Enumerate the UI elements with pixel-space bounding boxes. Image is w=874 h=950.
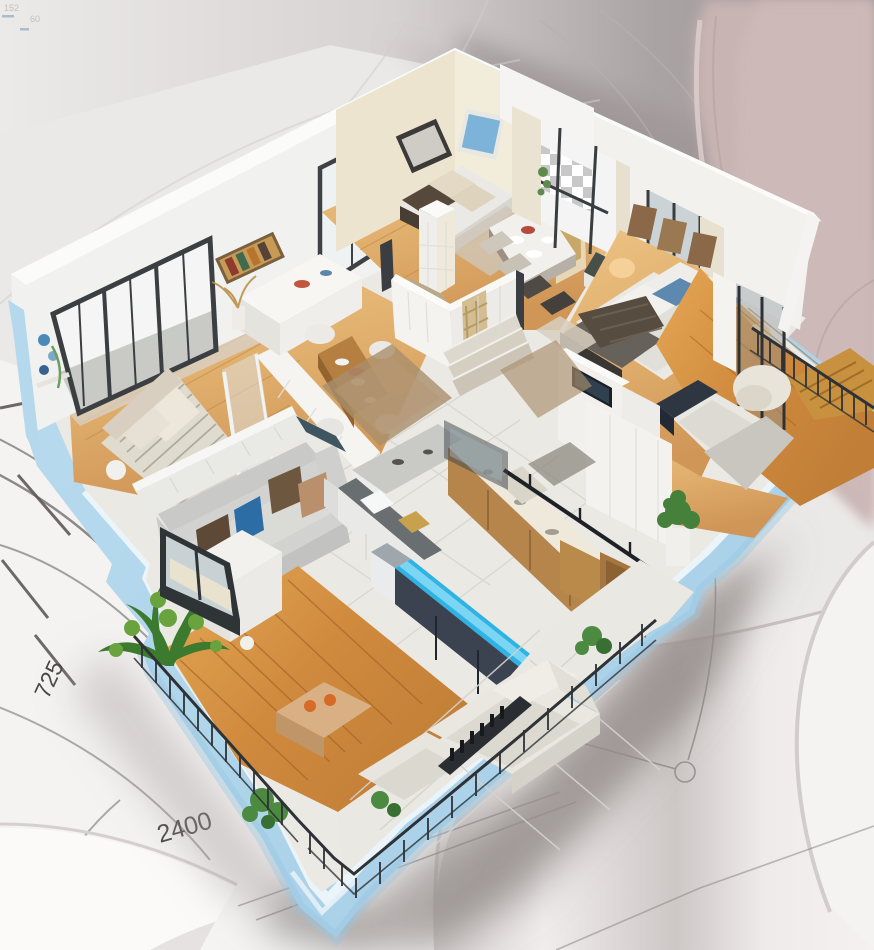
svg-text:152: 152	[4, 3, 19, 13]
svg-text:60: 60	[30, 14, 40, 24]
